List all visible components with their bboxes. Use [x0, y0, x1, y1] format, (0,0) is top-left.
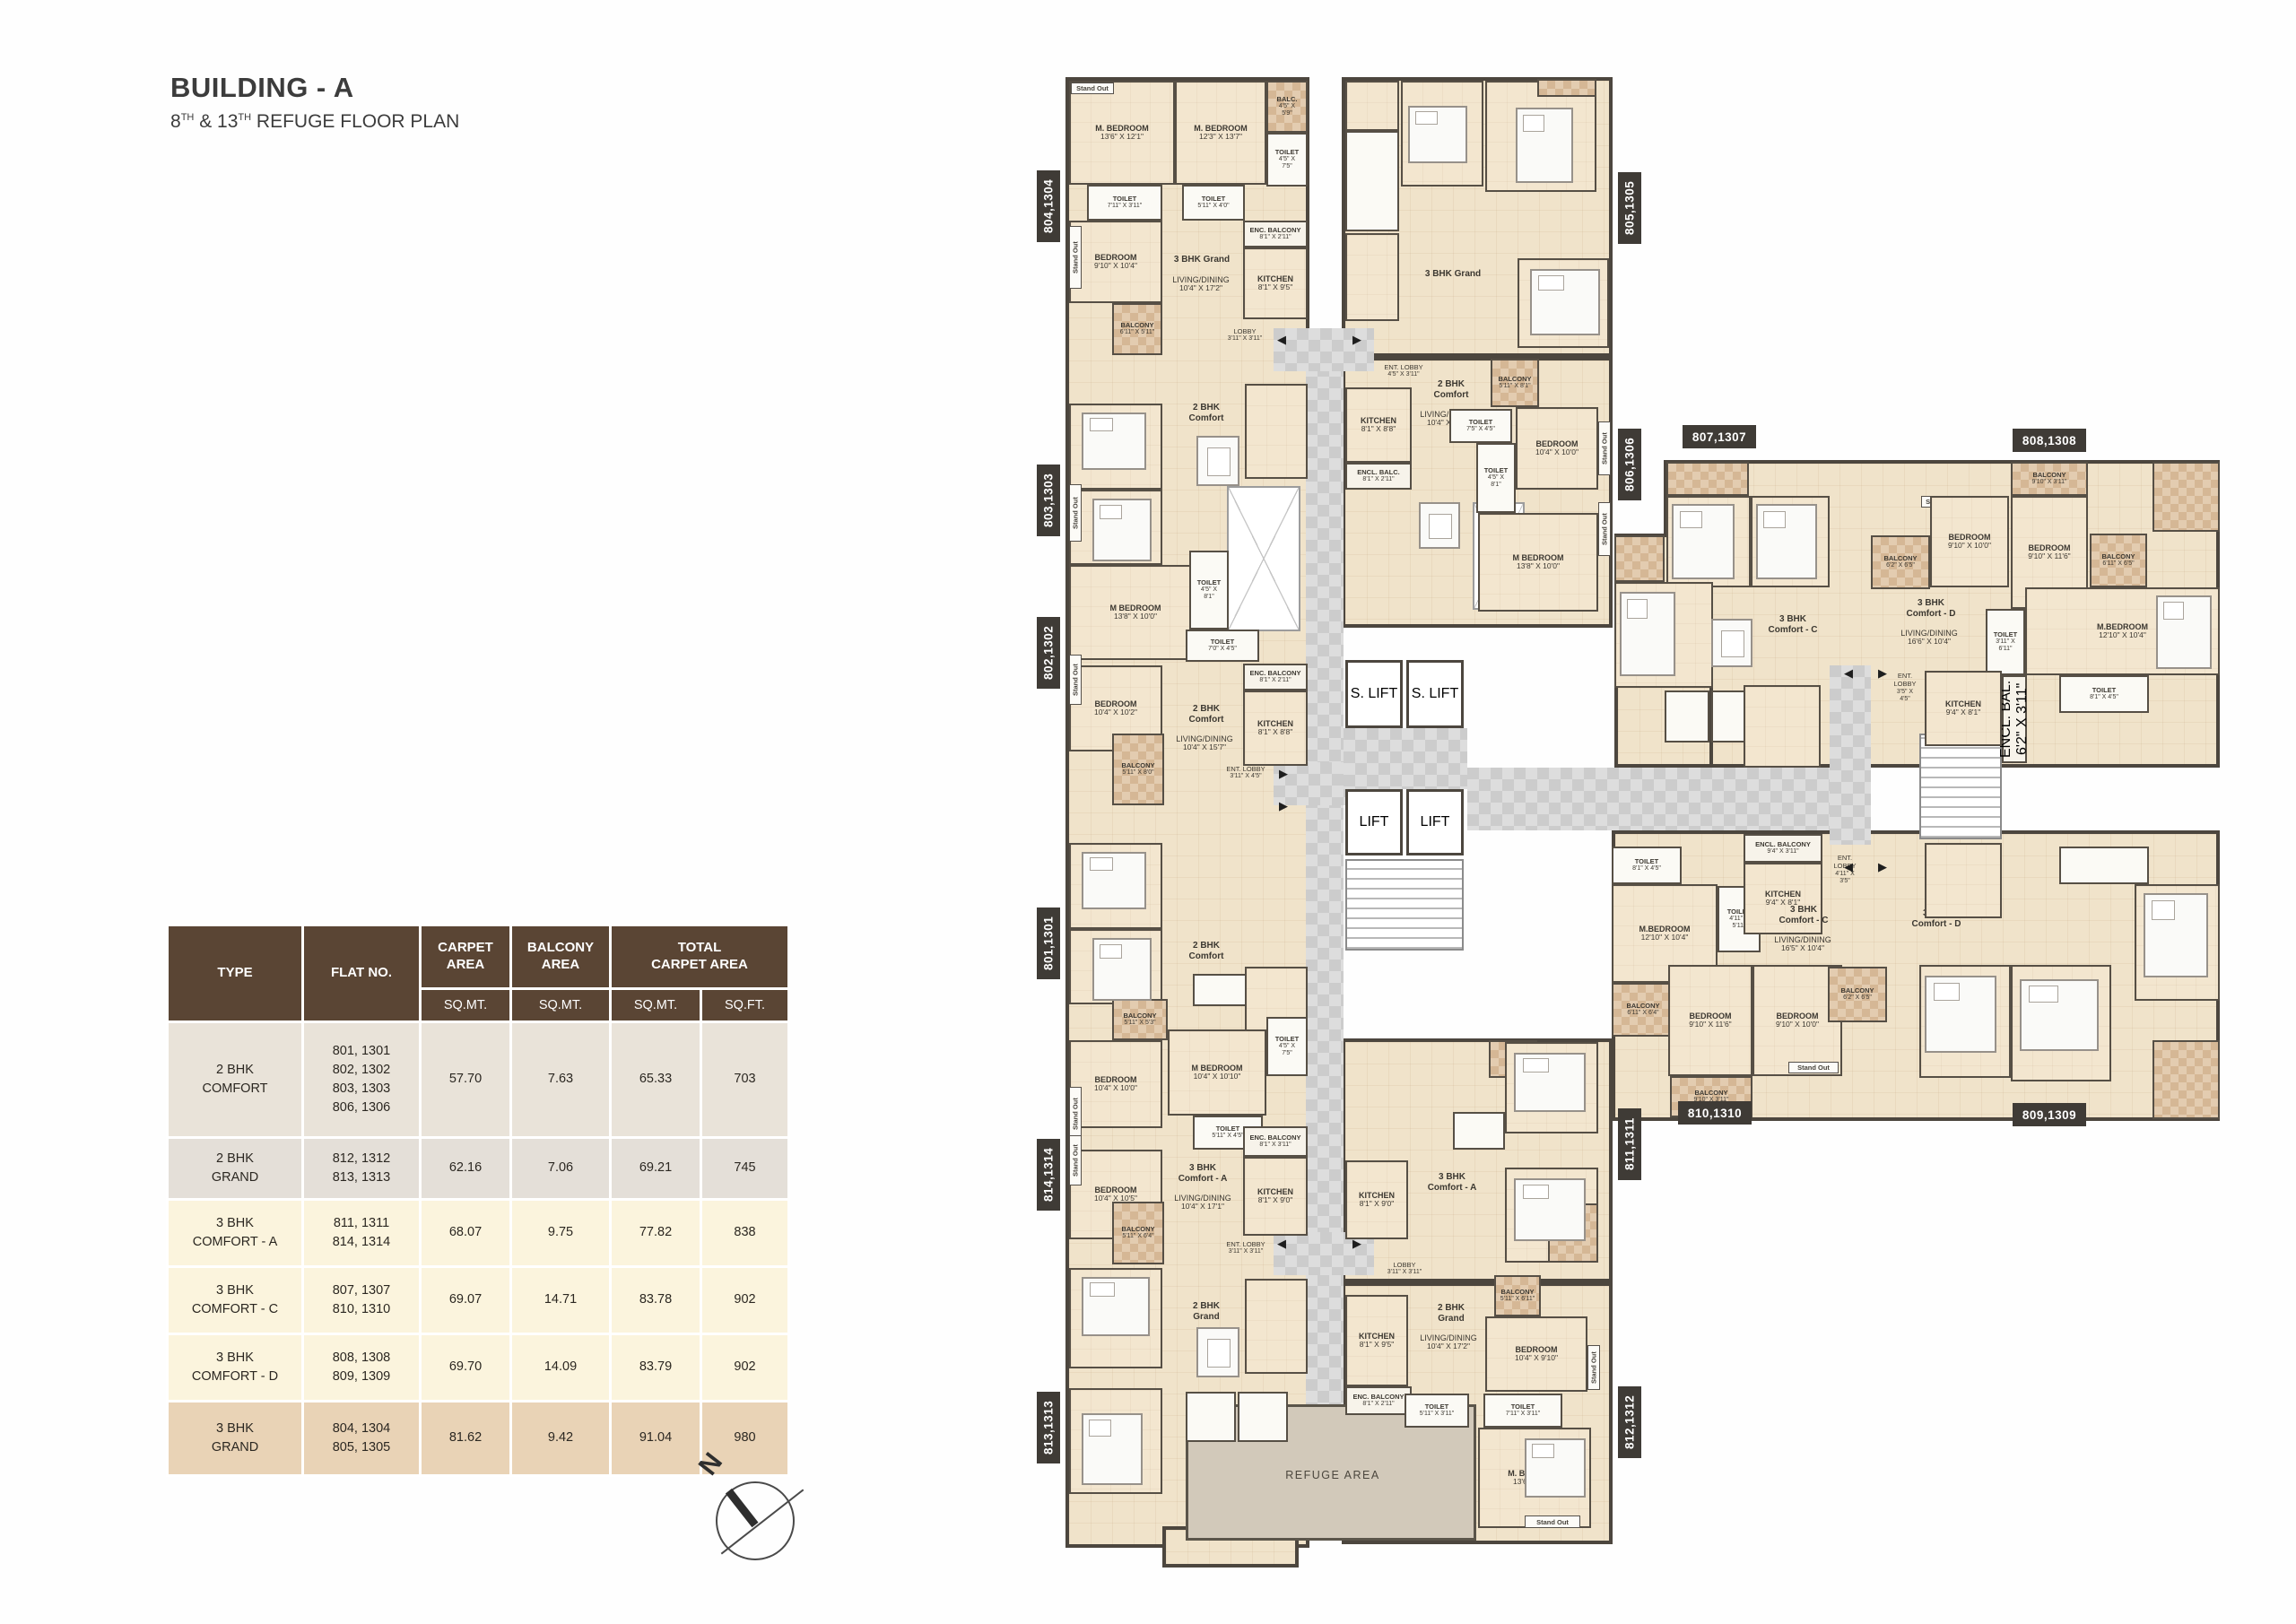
balcony: BALCONY5'11" X 8'0": [1112, 734, 1164, 805]
flat-number-tag: 813,1313: [1037, 1392, 1060, 1463]
enclosed-balcony: ENCL. BALC.8'1" X 2'11": [1345, 463, 1412, 490]
flat-number-tag: 803,1303: [1037, 465, 1060, 536]
direction-arrow-icon: ▶: [1279, 800, 1288, 812]
stand-out-chip: Stand Out: [1069, 1087, 1082, 1141]
bed-icon: [1756, 504, 1817, 579]
room: [1245, 1279, 1308, 1374]
room: M BEDROOM13'8" X 10'0": [1069, 565, 1202, 660]
enclosed-balcony: ENCL. BAL. 6'2" X 3'11": [2002, 675, 2027, 763]
room: BEDROOM9'10" X 10'0": [1930, 496, 2009, 587]
direction-arrow-icon: ▶: [1352, 1238, 1361, 1249]
room: M. BEDROOM13'6" X 12'1": [1069, 81, 1175, 185]
unit-type-label: 3 BHK Comfort - D: [1887, 594, 1975, 624]
room: BEDROOM10'4" X 10'0": [1069, 1040, 1162, 1128]
room-label: ENT. LOBBY3'11" X 4'5": [1207, 760, 1284, 786]
room: BEDROOM9'10" X 10'4": [1069, 221, 1162, 303]
toilet-room: [1453, 1112, 1505, 1150]
toilet-room: TOILET3'11" X 6'11": [1986, 609, 2025, 675]
unit-type-label: 3 BHK Grand: [1412, 264, 1494, 285]
balcony: BALC.4'5" X 5'9": [1266, 81, 1308, 133]
unit-type-label: 2 BHK Comfort: [1170, 936, 1243, 967]
stand-out-chip: Stand Out: [1788, 1062, 1839, 1073]
unit-type-label: 2 BHK Comfort: [1413, 375, 1489, 405]
lift: S. LIFT: [1345, 660, 1403, 728]
room-label: LIVING/DINING10'4" X 17'2": [1155, 271, 1247, 298]
toilet-room: TOILET4'5" X 7'5": [1266, 133, 1308, 187]
compass-circle: [716, 1481, 795, 1560]
room-label: LOBBY3'11" X 3'11": [1370, 1257, 1439, 1281]
direction-arrow-icon: ▶: [1352, 334, 1361, 345]
unit-type-label: 2 BHK Grand: [1413, 1298, 1489, 1329]
bed-icon: [1408, 106, 1467, 163]
direction-arrow-icon: ▶: [1878, 667, 1887, 679]
corridor: [1467, 768, 1857, 830]
unit-type-label: 3 BHK Grand: [1161, 249, 1243, 271]
room: KITCHEN8'1" X 9'5": [1345, 1295, 1408, 1386]
room-label: LIVING/DINING16'6" X 10'4": [1880, 624, 1979, 651]
dining-table-icon: [1196, 436, 1239, 486]
toilet-room: TOILET7'11" X 3'11": [1087, 185, 1162, 221]
refuge-label: REFUGE AREA: [1263, 1465, 1403, 1485]
direction-arrow-icon: ▶: [1878, 861, 1887, 873]
room: M BEDROOM10'4" X 10'10": [1168, 1029, 1266, 1116]
room: M. BEDROOM12'3" X 13'7": [1175, 81, 1266, 185]
stand-out-chip: Stand Out: [1587, 1345, 1600, 1390]
balcony: BALCONY6'11" X 6'4": [1612, 983, 1674, 1037]
room-label: LIVING/DINING10'4" X 15'7": [1159, 730, 1250, 757]
direction-arrow-icon: ◀: [1844, 667, 1853, 679]
room: BEDROOM9'10" X 11'6": [1668, 965, 1752, 1076]
unit-type-label: 2 BHK Comfort: [1170, 398, 1243, 429]
bed-icon: [1082, 1277, 1150, 1336]
balcony: [1666, 462, 1749, 496]
direction-arrow-icon: ▶: [1279, 768, 1288, 779]
balcony: BALCONY6'11" X 6'5": [2090, 534, 2147, 587]
toilet-room: TOILET4'5" X 8'1": [1189, 551, 1229, 630]
dining-table-icon: [1419, 502, 1460, 549]
bed-icon: [2156, 595, 2212, 669]
bed-icon: [1514, 1053, 1586, 1112]
balcony: BALCONY5'11" X 6'4": [1112, 1202, 1164, 1264]
toilet-room: [1665, 690, 1709, 743]
unit-type-label: 3 BHK Comfort - C: [1749, 610, 1837, 640]
bed-icon: [1620, 592, 1675, 676]
stand-out-chip: Stand Out: [1069, 226, 1082, 289]
toilet-room: TOILET5'11" X 4'0": [1182, 185, 1245, 221]
bed-icon: [1516, 108, 1573, 183]
room: M BEDROOM13'8" X 10'0": [1478, 513, 1598, 612]
balcony: BALCONY6'2" X 6'5": [1871, 535, 1930, 589]
stand-out-chip: Stand Out: [1069, 1135, 1082, 1185]
bed-icon: [1082, 413, 1146, 470]
room: [1345, 81, 1399, 131]
room-label: LIVING/DINING16'5" X 10'4": [1754, 931, 1851, 958]
toilet-room: TOILET5'11" X 3'11": [1405, 1394, 1469, 1428]
balcony: [1537, 79, 1596, 97]
flat-number-tag: 814,1314: [1037, 1139, 1060, 1211]
flat-number-tag: 812,1312: [1618, 1386, 1641, 1458]
balcony: BALCONY5'11" X 8'1": [1491, 359, 1539, 407]
direction-arrow-icon: ◀: [1277, 1238, 1286, 1249]
room: KITCHEN8'1" X 9'0": [1345, 1160, 1408, 1239]
flat-number-tag: 802,1302: [1037, 617, 1060, 689]
unit-type-label: 3 BHK Comfort - A: [1162, 1159, 1243, 1189]
flat-number-tag: 811,1311: [1618, 1108, 1641, 1180]
balcony: BALCONY9'10" X 3'11": [2011, 462, 2088, 496]
room: KITCHEN8'1" X 9'5": [1243, 248, 1308, 319]
flat-number-tag: 808,1308: [2013, 429, 2086, 452]
room: [1925, 843, 2002, 918]
bed-icon: [2144, 893, 2208, 977]
room: KITCHEN9'4" X 8'1": [1925, 671, 2002, 746]
bed-icon: [1514, 1178, 1586, 1241]
stand-out-chip: Stand Out: [1598, 421, 1611, 475]
enclosed-balcony: ENC. BALCONY8'1" X 2'11": [1243, 221, 1308, 248]
bed-icon: [1082, 852, 1146, 909]
toilet-room: TOILET7'0" X 4'5": [1186, 630, 1259, 662]
balcony: BALCONY5'11" X 6'11": [1494, 1275, 1541, 1316]
stand-out-chip: Stand Out: [1525, 1515, 1580, 1528]
balcony: BALCONY6'2" X 6'5": [1828, 967, 1887, 1022]
room-label: LIVING/DINING10'4" X 17'1": [1157, 1189, 1248, 1216]
lift: LIFT: [1345, 789, 1403, 855]
flat-number-tag: 804,1304: [1037, 170, 1060, 242]
duct-shaft: [1227, 486, 1300, 631]
balcony: [2152, 1040, 2220, 1119]
bed-icon: [2020, 979, 2099, 1051]
toilet-room: TOILET8'1" X 4'5": [1612, 847, 1682, 884]
balcony: BALCONY5'11" X 5'3": [1112, 999, 1168, 1040]
bed-icon: [1672, 504, 1735, 579]
corridor: [1830, 665, 1871, 845]
enclosed-balcony: ENCL. BALCONY9'4" X 3'11": [1744, 834, 1822, 863]
lift: LIFT: [1406, 789, 1464, 855]
staircase: [1345, 859, 1464, 951]
flat-number-tag: 810,1310: [1678, 1101, 1752, 1125]
bed-icon: [1525, 1438, 1586, 1498]
unit-type-label: 2 BHK Comfort: [1170, 699, 1243, 730]
toilet-room: [1238, 1392, 1288, 1442]
toilet-room: TOILET8'1" X 4'5": [2059, 675, 2149, 713]
stand-out-chip: Stand Out: [1071, 83, 1114, 94]
stand-out-chip: Stand Out: [1069, 655, 1082, 705]
compass-icon: N: [700, 1453, 825, 1569]
compass-needle: [726, 1489, 759, 1527]
unit-type-label: 3 BHK Comfort - C: [1760, 900, 1848, 931]
balcony: BALCONY6'11" X 5'11": [1112, 303, 1162, 355]
floor-plan: S. LIFTS. LIFTLIFTLIFTM. BEDROOM13'6" X …: [0, 0, 2296, 1624]
room: [1744, 685, 1821, 768]
bed-icon: [1925, 976, 1996, 1053]
enclosed-balcony: ENC. BALCONY8'1" X 2'11": [1243, 664, 1308, 690]
stand-out-chip: Stand Out: [1598, 502, 1611, 556]
bed-icon: [1092, 938, 1152, 1001]
dining-table-icon: [1711, 619, 1752, 667]
room: [1345, 233, 1399, 321]
flat-number-tag: 807,1307: [1683, 425, 1756, 448]
room: [1245, 384, 1308, 479]
direction-arrow-icon: ◀: [1844, 861, 1853, 873]
room: KITCHEN8'1" X 9'0": [1243, 1157, 1308, 1236]
flat-number-tag: 809,1309: [2013, 1103, 2086, 1126]
lift: S. LIFT: [1406, 660, 1464, 728]
toilet-room: TOILET7'11" X 3'11": [1483, 1394, 1562, 1428]
toilet-room: TOILET4'5" X 7'5": [1266, 1017, 1308, 1076]
dining-table-icon: [1196, 1327, 1239, 1377]
bed-icon: [1082, 1413, 1143, 1485]
direction-arrow-icon: ◀: [1277, 334, 1286, 345]
room-label: LIVING/DINING10'4" X 17'2": [1405, 1329, 1492, 1356]
room: KITCHEN8'1" X 8'8": [1345, 387, 1412, 463]
balcony: [1614, 535, 1665, 582]
enclosed-balcony: ENC. BALCONY8'1" X 2'11": [1345, 1386, 1412, 1415]
toilet-room: [1345, 131, 1399, 231]
bed-icon: [1530, 269, 1600, 335]
toilet-room: TOILET4'5" X 8'1": [1476, 443, 1516, 513]
toilet-room: [2059, 847, 2149, 884]
toilet-room: TOILET7'5" X 4'5": [1449, 409, 1512, 443]
flat-number-tag: 806,1306: [1618, 429, 1641, 500]
room: BEDROOM10'4" X 10'0": [1516, 407, 1598, 490]
staircase: [1919, 734, 2002, 839]
balcony: [2152, 462, 2220, 532]
bed-icon: [1092, 499, 1152, 561]
room-label: ENT. LOBBY3'11" X 3'11": [1207, 1236, 1284, 1261]
stand-out-chip: Stand Out: [1069, 484, 1082, 542]
flat-number-tag: 801,1301: [1037, 908, 1060, 979]
corridor: [1344, 728, 1467, 789]
unit-type-label: 2 BHK Grand: [1170, 1297, 1243, 1327]
enclosed-balcony: ENC. BALCONY8'1" X 3'11": [1243, 1126, 1308, 1157]
toilet-room: [1186, 1392, 1236, 1442]
room: BEDROOM10'4" X 9'10": [1485, 1316, 1587, 1392]
flat-number-tag: 805,1305: [1618, 172, 1641, 244]
room-label: LOBBY3'11" X 3'11": [1211, 323, 1279, 348]
room: KITCHEN8'1" X 8'8": [1243, 690, 1308, 766]
unit-type-label: 3 BHK Comfort - A: [1412, 1168, 1492, 1198]
